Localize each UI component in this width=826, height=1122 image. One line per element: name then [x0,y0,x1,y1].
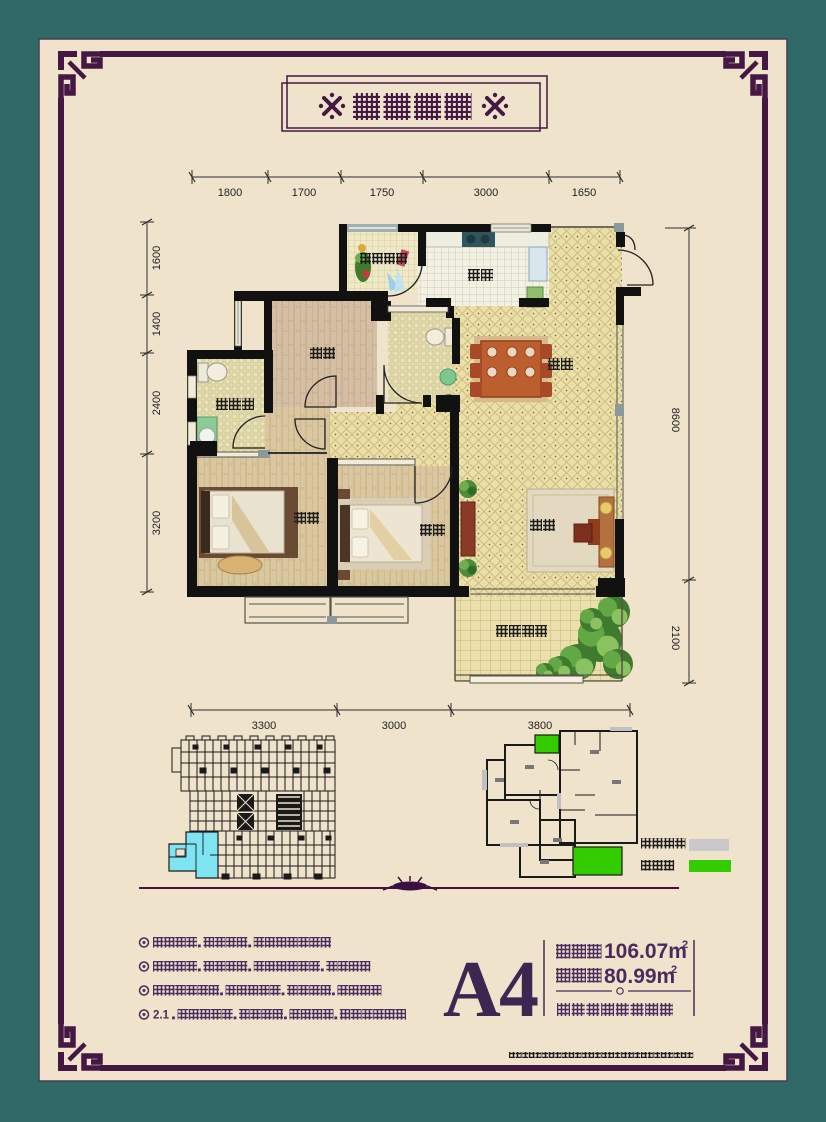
svg-text:1750: 1750 [370,187,394,199]
svg-text:80.99m: 80.99m [604,965,675,988]
svg-text:2100: 2100 [669,626,681,650]
svg-text:1650: 1650 [572,187,596,199]
svg-text:2: 2 [682,939,688,951]
svg-text:3000: 3000 [382,720,406,732]
svg-text:1400: 1400 [151,312,163,336]
svg-text:2.1: 2.1 [153,1010,170,1022]
svg-text:2400: 2400 [151,391,163,415]
svg-text:2: 2 [671,964,677,976]
svg-text:1600: 1600 [151,246,163,270]
svg-text:3200: 3200 [151,511,163,535]
svg-text:A: A [443,946,501,1034]
svg-text:3300: 3300 [252,720,276,732]
svg-text:4: 4 [499,946,539,1034]
svg-text:8600: 8600 [669,408,681,432]
svg-text:1700: 1700 [292,187,316,199]
svg-text:3800: 3800 [528,720,552,732]
svg-text:106.07m: 106.07m [604,940,687,963]
svg-text:1800: 1800 [218,187,242,199]
svg-text:3000: 3000 [474,187,498,199]
